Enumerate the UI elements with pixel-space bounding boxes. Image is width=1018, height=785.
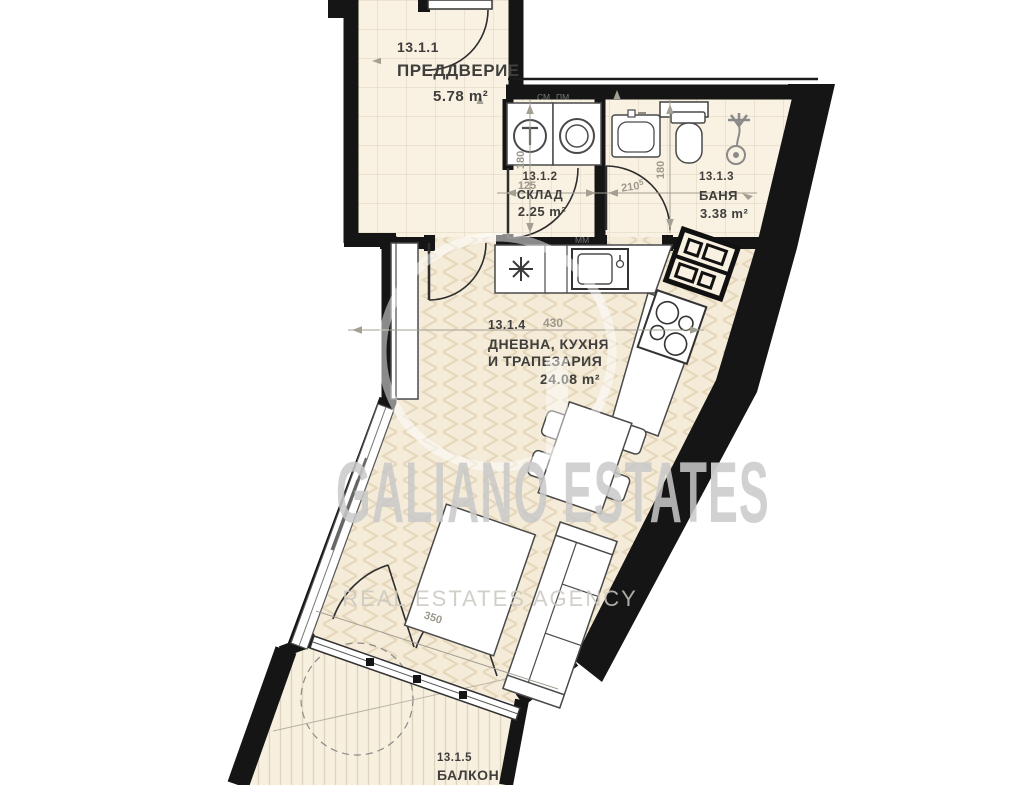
room-bath-code: 13.1.3 <box>699 171 734 183</box>
wall-top-left-stub <box>328 0 344 18</box>
toilet-icon <box>671 112 705 163</box>
room-hall-floor <box>350 0 516 243</box>
room-bath-name: БАНЯ <box>699 188 738 203</box>
room-balcony-code: 13.1.5 <box>437 752 472 764</box>
room-living-name-1: ДНЕВНА, КУХНЯ <box>488 336 609 352</box>
watermark-brand-part1: GALIANO ESTAT <box>336 444 708 541</box>
washer-label: СМ <box>537 92 550 102</box>
dim-living-width: 430 <box>543 316 563 330</box>
kitchen-counter <box>495 245 672 293</box>
room-hall-name: ПРЕДДВЕРИЕ <box>397 61 520 80</box>
watermark-brand-text: GALIANO ESTATES <box>336 444 770 541</box>
room-balcony-name: БАЛКОН <box>437 767 499 783</box>
floor-plan-page: 125 180 2105 180 430 350 13.1.1 ПРЕДДВЕР… <box>0 0 1018 785</box>
dishwasher-label: ПМ <box>556 92 569 102</box>
dim-storage-depth: 180 <box>515 151 527 169</box>
dim-bath-width-main: 210 <box>620 180 640 194</box>
room-living-code: 13.1.4 <box>488 318 526 332</box>
sink-icon <box>612 110 660 157</box>
room-living-name-2: И ТРАПЕЗАРИЯ <box>488 353 602 369</box>
floor-plan-image: 125 180 2105 180 430 350 13.1.1 ПРЕДДВЕР… <box>0 0 1018 785</box>
watermark-brand: GALIANO ESTATES <box>336 444 770 541</box>
room-storage-code: 13.1.2 <box>523 171 558 183</box>
kitchen-sink-label: ММ <box>575 235 589 245</box>
door-handle-marker-3 <box>459 691 467 699</box>
watermark-tagline: REAL ESTATES AGENCY <box>342 586 638 611</box>
room-bath-area: 3.38 m² <box>700 206 748 221</box>
entrance-door-leaf <box>428 0 492 9</box>
room-hall-code: 13.1.1 <box>397 39 439 55</box>
room-storage-name: СКЛАД <box>517 188 563 202</box>
room-hall-area: 5.78 m² <box>433 88 488 105</box>
door-handle-marker-2 <box>413 675 421 683</box>
door-handle-marker-1 <box>366 658 374 666</box>
room-storage-area: 2.25 m² <box>518 204 566 219</box>
watermark-brand-part2: ES <box>708 444 770 541</box>
dim-bath-depth: 180 <box>655 161 667 179</box>
